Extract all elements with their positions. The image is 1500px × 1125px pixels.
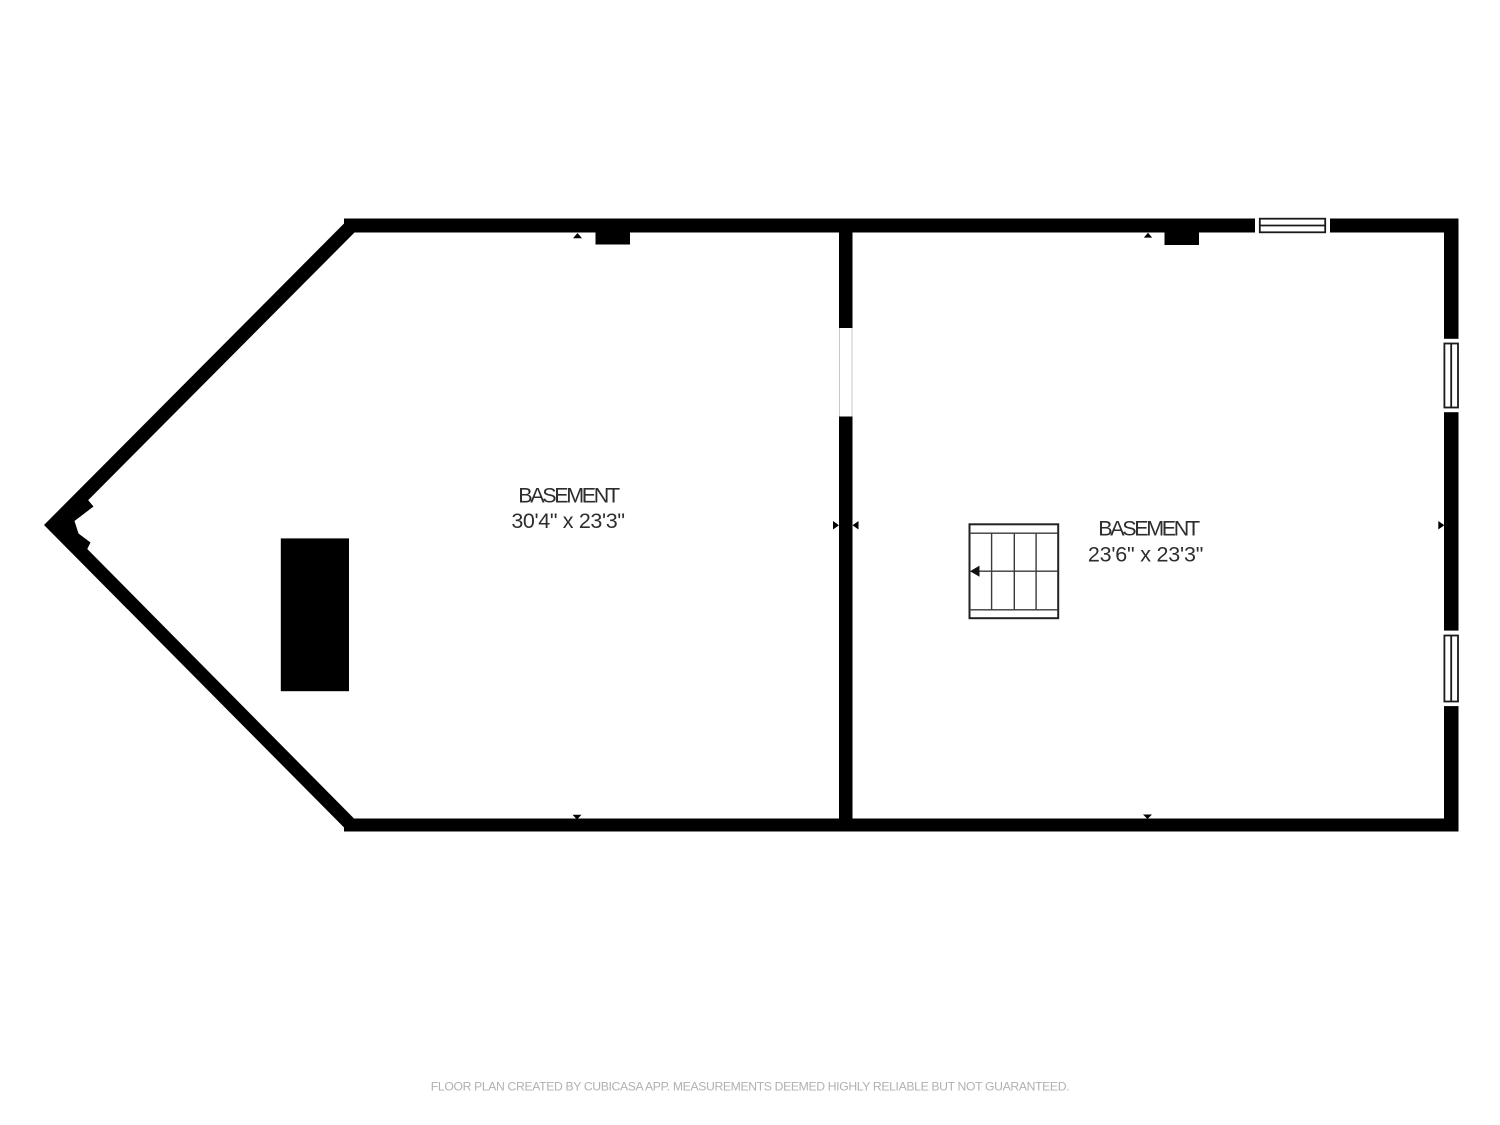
svg-text:FLOOR PLAN CREATED BY CUBICASA: FLOOR PLAN CREATED BY CUBICASA APP. MEAS… bbox=[431, 1080, 1069, 1094]
svg-text:30'4" x 23'3": 30'4" x 23'3" bbox=[511, 509, 624, 533]
svg-text:23'6" x 23'3": 23'6" x 23'3" bbox=[1088, 542, 1203, 566]
svg-text:BASEMENT: BASEMENT bbox=[1098, 516, 1200, 540]
svg-text:BASEMENT: BASEMENT bbox=[518, 484, 620, 508]
